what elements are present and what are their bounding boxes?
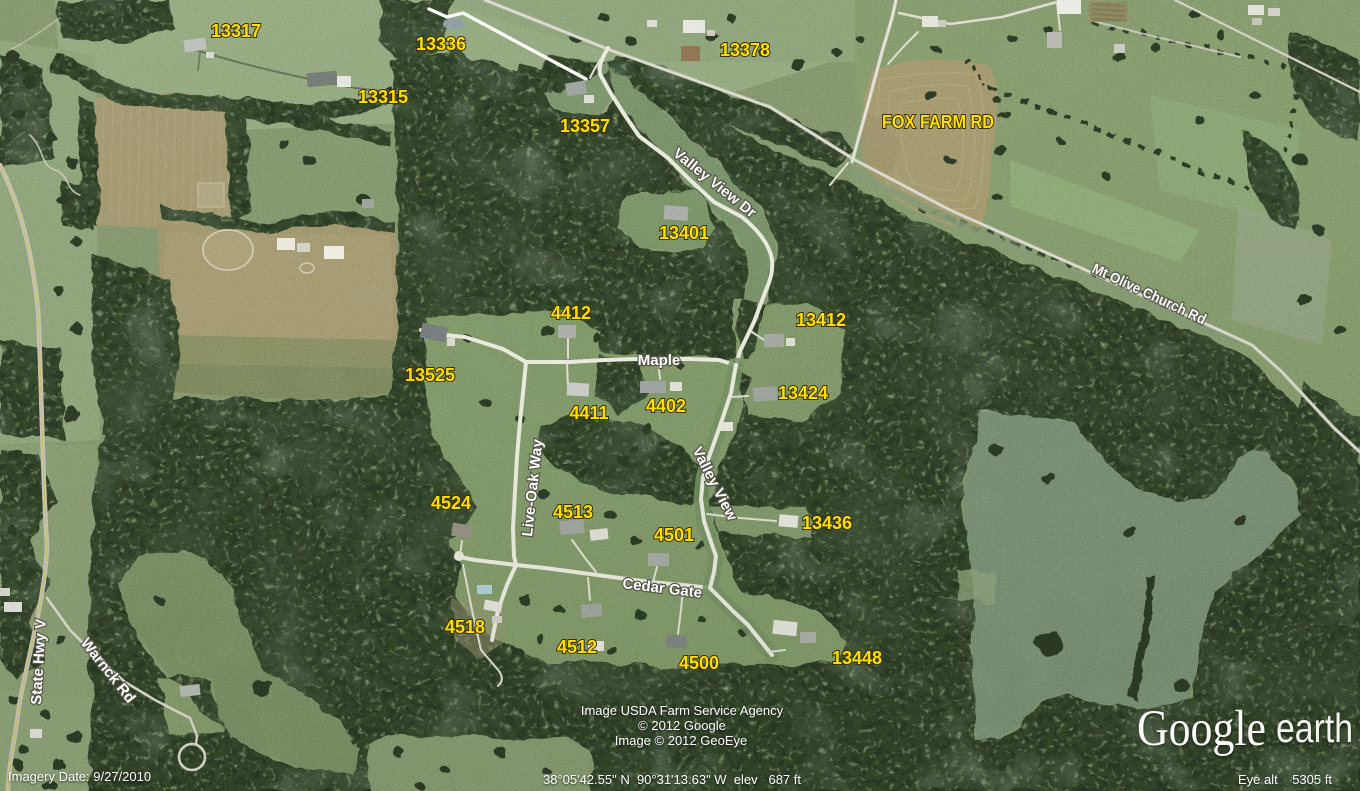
svg-text:Image USDA Farm Service Agency: Image USDA Farm Service Agency xyxy=(581,703,784,718)
svg-text:13525: 13525 xyxy=(405,365,455,385)
svg-text:4512: 4512 xyxy=(557,637,597,657)
svg-text:4412: 4412 xyxy=(551,303,591,323)
svg-text:FOX FARM RD: FOX FARM RD xyxy=(882,112,994,132)
svg-text:4411: 4411 xyxy=(569,403,608,423)
svg-text:4501: 4501 xyxy=(654,525,694,545)
svg-text:13336: 13336 xyxy=(416,34,466,54)
svg-text:Google: Google xyxy=(1137,701,1266,757)
svg-text:13401: 13401 xyxy=(659,223,709,243)
svg-text:Eye alt 5305 ft: Eye alt 5305 ft xyxy=(1238,772,1332,787)
svg-text:13436: 13436 xyxy=(802,513,852,533)
svg-text:4402: 4402 xyxy=(646,396,686,416)
svg-text:13315: 13315 xyxy=(358,87,408,107)
svg-text:4513: 4513 xyxy=(553,502,593,522)
svg-text:4524: 4524 xyxy=(431,493,471,513)
svg-text:13317: 13317 xyxy=(211,21,261,41)
svg-text:4518: 4518 xyxy=(445,617,485,637)
svg-text:Maple: Maple xyxy=(638,352,681,369)
svg-text:13357: 13357 xyxy=(560,116,610,136)
svg-text:13378: 13378 xyxy=(720,40,770,60)
svg-text:Image © 2012 GeoEye: Image © 2012 GeoEye xyxy=(615,733,747,748)
svg-text:Imagery Date: 9/27/2010: Imagery Date: 9/27/2010 xyxy=(8,769,151,784)
svg-text:13412: 13412 xyxy=(796,310,846,330)
svg-text:13424: 13424 xyxy=(778,383,828,403)
svg-text:© 2012 Google: © 2012 Google xyxy=(638,718,726,733)
svg-text:4500: 4500 xyxy=(679,653,719,673)
svg-text:earth: earth xyxy=(1276,705,1353,751)
svg-text:38°05'42.55" N 90°31'13.63" W: 38°05'42.55" N 90°31'13.63" W elev 687 f… xyxy=(543,772,801,787)
svg-text:13448: 13448 xyxy=(832,648,882,668)
